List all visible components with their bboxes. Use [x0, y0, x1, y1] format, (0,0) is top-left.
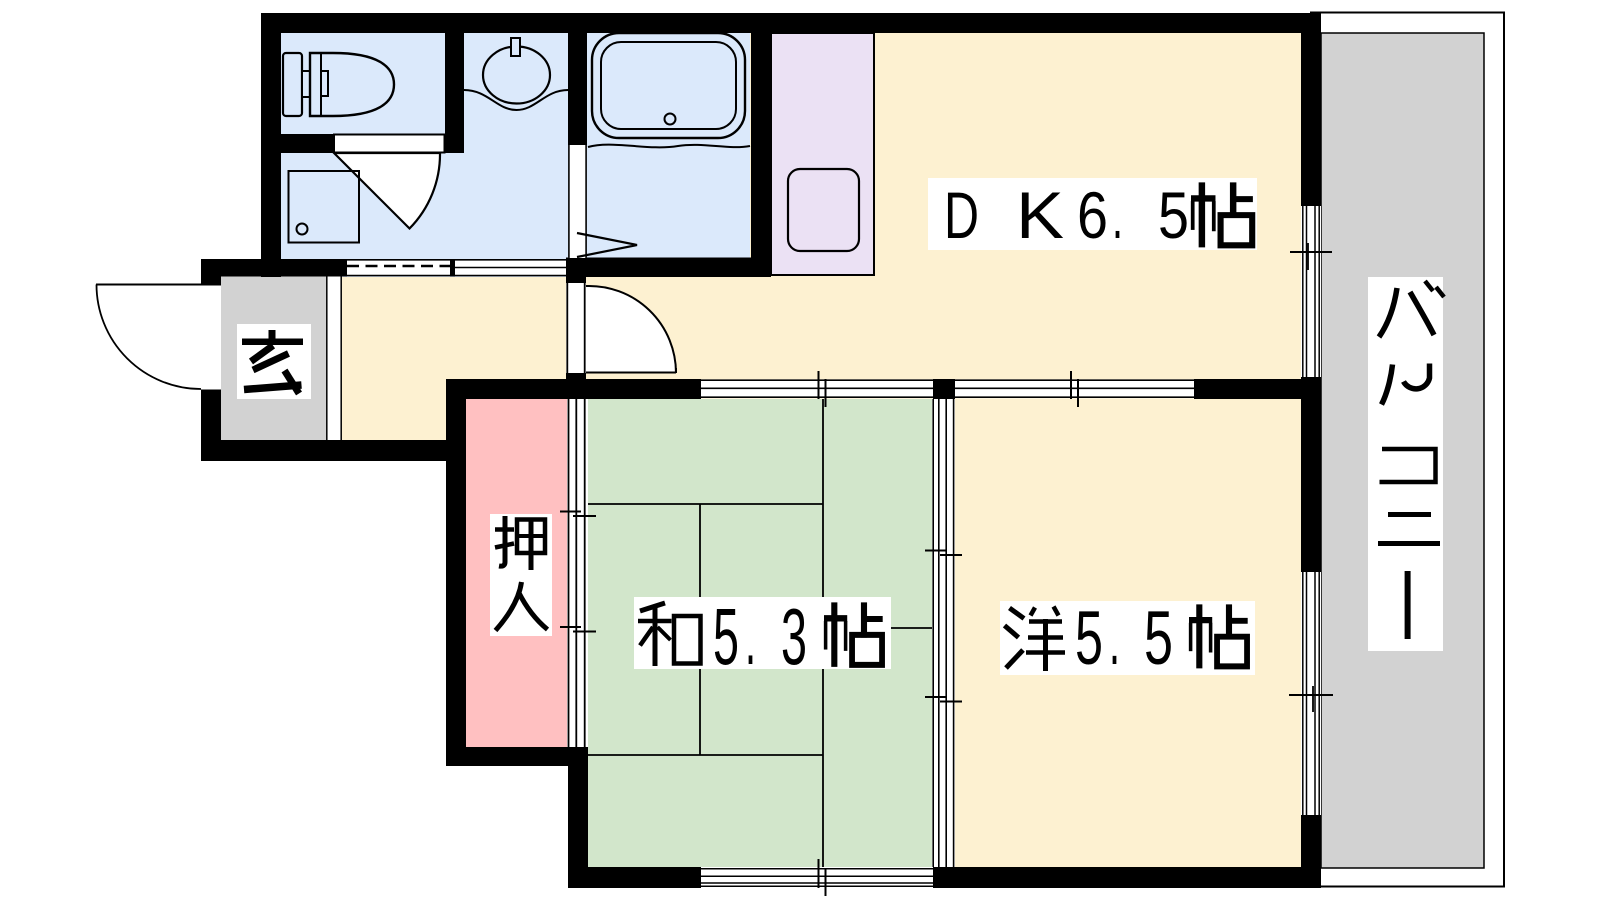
svg-text:.: .: [1109, 596, 1120, 681]
svg-text:.: .: [1112, 178, 1123, 252]
svg-text:5: 5: [1144, 596, 1173, 681]
svg-text:6: 6: [1077, 178, 1108, 252]
svg-text:D: D: [944, 178, 979, 252]
svg-text:5: 5: [1075, 596, 1103, 681]
svg-text:5: 5: [713, 592, 739, 681]
svg-text:K: K: [1016, 178, 1064, 252]
svg-text:.: .: [745, 592, 756, 681]
svg-text:5: 5: [1158, 178, 1189, 252]
svg-text:3: 3: [781, 592, 807, 681]
